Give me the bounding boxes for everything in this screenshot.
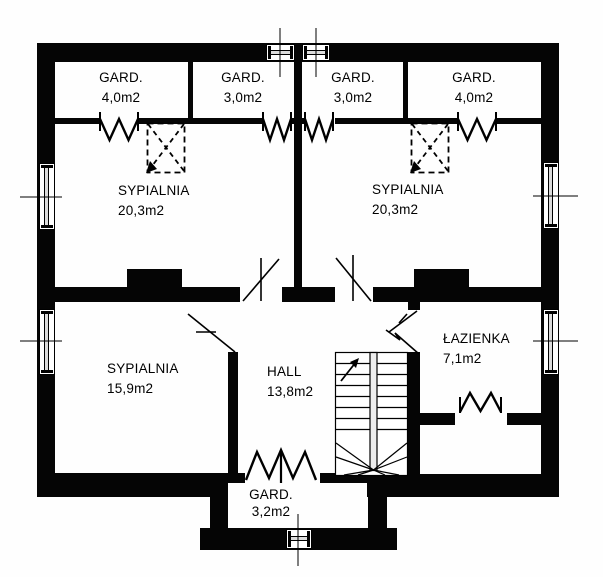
folding-door-icon bbox=[263, 112, 291, 140]
room-label-gard-top-midright: GARD. 3,0m2 bbox=[308, 68, 398, 108]
room-area: 7,1m2 bbox=[443, 349, 510, 369]
door-swing-icon bbox=[336, 255, 371, 301]
staircase-icon bbox=[336, 330, 420, 476]
room-name: GARD. bbox=[76, 68, 166, 88]
room-name: GARD. bbox=[308, 68, 398, 88]
room-label-gard-top-midleft: GARD. 3,0m2 bbox=[198, 68, 288, 108]
room-label-bedroom-right: SYPIALNIA 20,3m2 bbox=[372, 180, 444, 220]
room-name: SYPIALNIA bbox=[372, 180, 444, 200]
folding-door-icon bbox=[100, 112, 138, 140]
room-area: 15,9m2 bbox=[107, 379, 179, 399]
folding-door-icon bbox=[460, 393, 501, 413]
room-label-gard-top-left: GARD. 4,0m2 bbox=[76, 68, 166, 108]
room-area: 20,3m2 bbox=[118, 201, 190, 221]
stair-break-line-icon bbox=[386, 330, 419, 354]
room-area: 4,0m2 bbox=[76, 88, 166, 108]
room-name: SYPIALNIA bbox=[107, 359, 179, 379]
room-area: 3,2m2 bbox=[231, 503, 311, 520]
folding-door-icon bbox=[458, 112, 496, 140]
room-name: ŁAZIENKA bbox=[443, 329, 510, 349]
room-name: HALL bbox=[267, 362, 313, 382]
door-swing-icon bbox=[389, 311, 417, 332]
room-label-bathroom: ŁAZIENKA 7,1m2 bbox=[443, 329, 510, 369]
door-swing-icon bbox=[188, 314, 235, 352]
room-area: 20,3m2 bbox=[372, 200, 444, 220]
door-swing-icon bbox=[243, 258, 279, 301]
room-label-gard-top-right: GARD. 4,0m2 bbox=[429, 68, 519, 108]
folding-door-icon bbox=[246, 450, 316, 483]
room-name: GARD. bbox=[231, 486, 311, 503]
room-name: GARD. bbox=[198, 68, 288, 88]
room-label-hall: HALL 13,8m2 bbox=[267, 362, 313, 402]
room-label-gard-bottom: GARD. 3,2m2 bbox=[231, 486, 311, 520]
room-area: 3,0m2 bbox=[308, 88, 398, 108]
room-area: 13,8m2 bbox=[267, 382, 313, 402]
room-name: SYPIALNIA bbox=[118, 181, 190, 201]
room-name: GARD. bbox=[429, 68, 519, 88]
wardrobe-icon bbox=[146, 124, 185, 174]
room-area: 4,0m2 bbox=[429, 88, 519, 108]
room-label-bedroom-bottom: SYPIALNIA 15,9m2 bbox=[107, 359, 179, 399]
wardrobe-icon bbox=[410, 124, 449, 174]
folding-door-icon bbox=[305, 112, 333, 140]
floor-plan: GARD. 4,0m2 GARD. 3,0m2 GARD. 3,0m2 GARD… bbox=[0, 0, 603, 577]
room-area: 3,0m2 bbox=[198, 88, 288, 108]
room-label-bedroom-left: SYPIALNIA 20,3m2 bbox=[118, 181, 190, 221]
